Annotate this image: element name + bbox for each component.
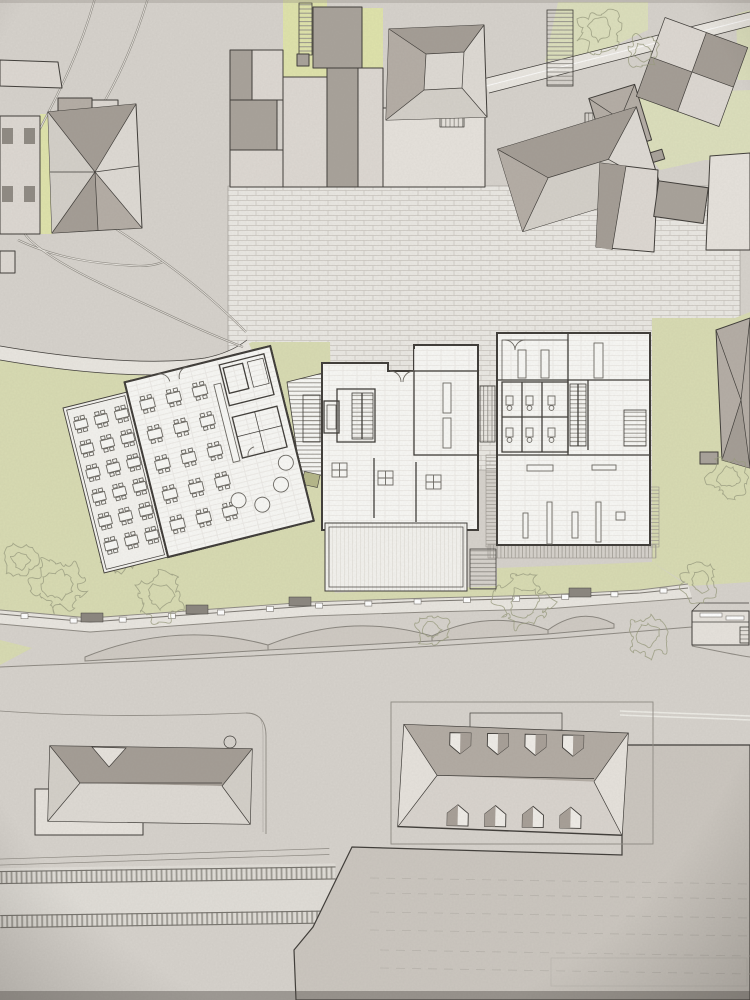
site-plan-photo [0,0,750,1000]
site-plan-svg [0,0,750,1000]
photo-edge-top [0,0,750,3]
photo-vignette [0,0,750,1000]
photo-edge-shadow [0,991,750,1000]
